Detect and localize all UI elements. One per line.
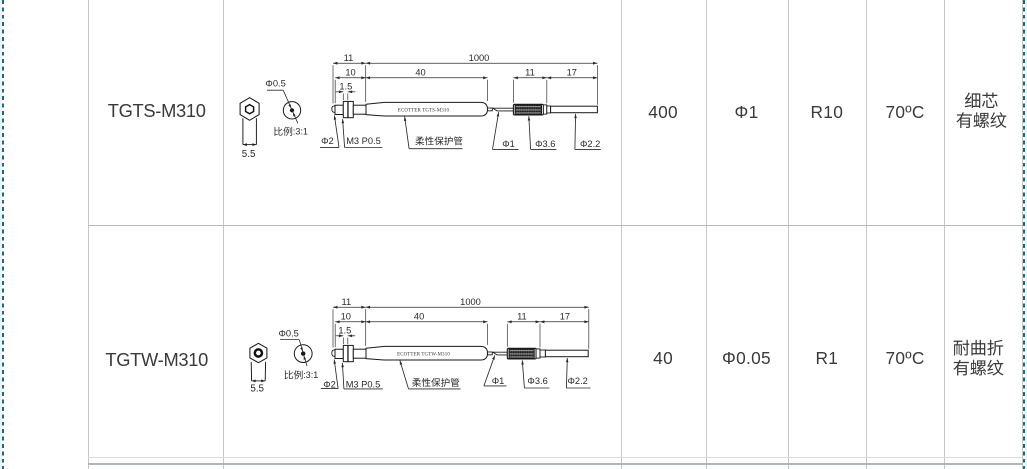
svg-text:40: 40 [415, 67, 425, 77]
svg-text:5.5: 5.5 [250, 383, 264, 394]
svg-text:Φ3.6: Φ3.6 [535, 139, 555, 149]
svg-text:40: 40 [414, 311, 424, 321]
svg-text:1.5: 1.5 [339, 81, 352, 91]
svg-text:5.5: 5.5 [242, 149, 256, 160]
svg-text:Φ1: Φ1 [492, 376, 505, 386]
svg-text:Φ2: Φ2 [323, 379, 336, 389]
svg-text:10: 10 [341, 311, 351, 321]
svg-text:Φ0.5: Φ0.5 [265, 79, 285, 89]
svg-text:1.5: 1.5 [338, 325, 351, 335]
svg-text::3:1: :3:1 [303, 370, 318, 380]
svg-text:Φ0.5: Φ0.5 [279, 329, 299, 339]
svg-text:Φ1: Φ1 [502, 139, 515, 149]
svg-text:Φ2.2: Φ2.2 [580, 139, 600, 149]
svg-text:ECOTTER TGTS-M310: ECOTTER TGTS-M310 [398, 108, 450, 113]
svg-text:11: 11 [525, 67, 535, 77]
svg-text:1000: 1000 [469, 53, 490, 63]
svg-text:Φ2.2: Φ2.2 [568, 376, 588, 386]
svg-text:17: 17 [567, 67, 577, 77]
svg-text:1000: 1000 [460, 297, 481, 307]
svg-text:17: 17 [560, 311, 570, 321]
svg-text:M3 P0.5: M3 P0.5 [346, 379, 381, 389]
svg-text:10: 10 [345, 67, 355, 77]
svg-text:ECOTTER TGTW-M310: ECOTTER TGTW-M310 [397, 352, 450, 357]
svg-text::3:1: :3:1 [293, 126, 308, 136]
svg-text:11: 11 [517, 311, 527, 321]
svg-text:11: 11 [341, 297, 351, 307]
svg-text:11: 11 [344, 53, 354, 63]
svg-text:Φ3.6: Φ3.6 [527, 376, 547, 386]
svg-text:Φ2: Φ2 [321, 136, 334, 146]
svg-text:M3 P0.5: M3 P0.5 [346, 136, 381, 146]
